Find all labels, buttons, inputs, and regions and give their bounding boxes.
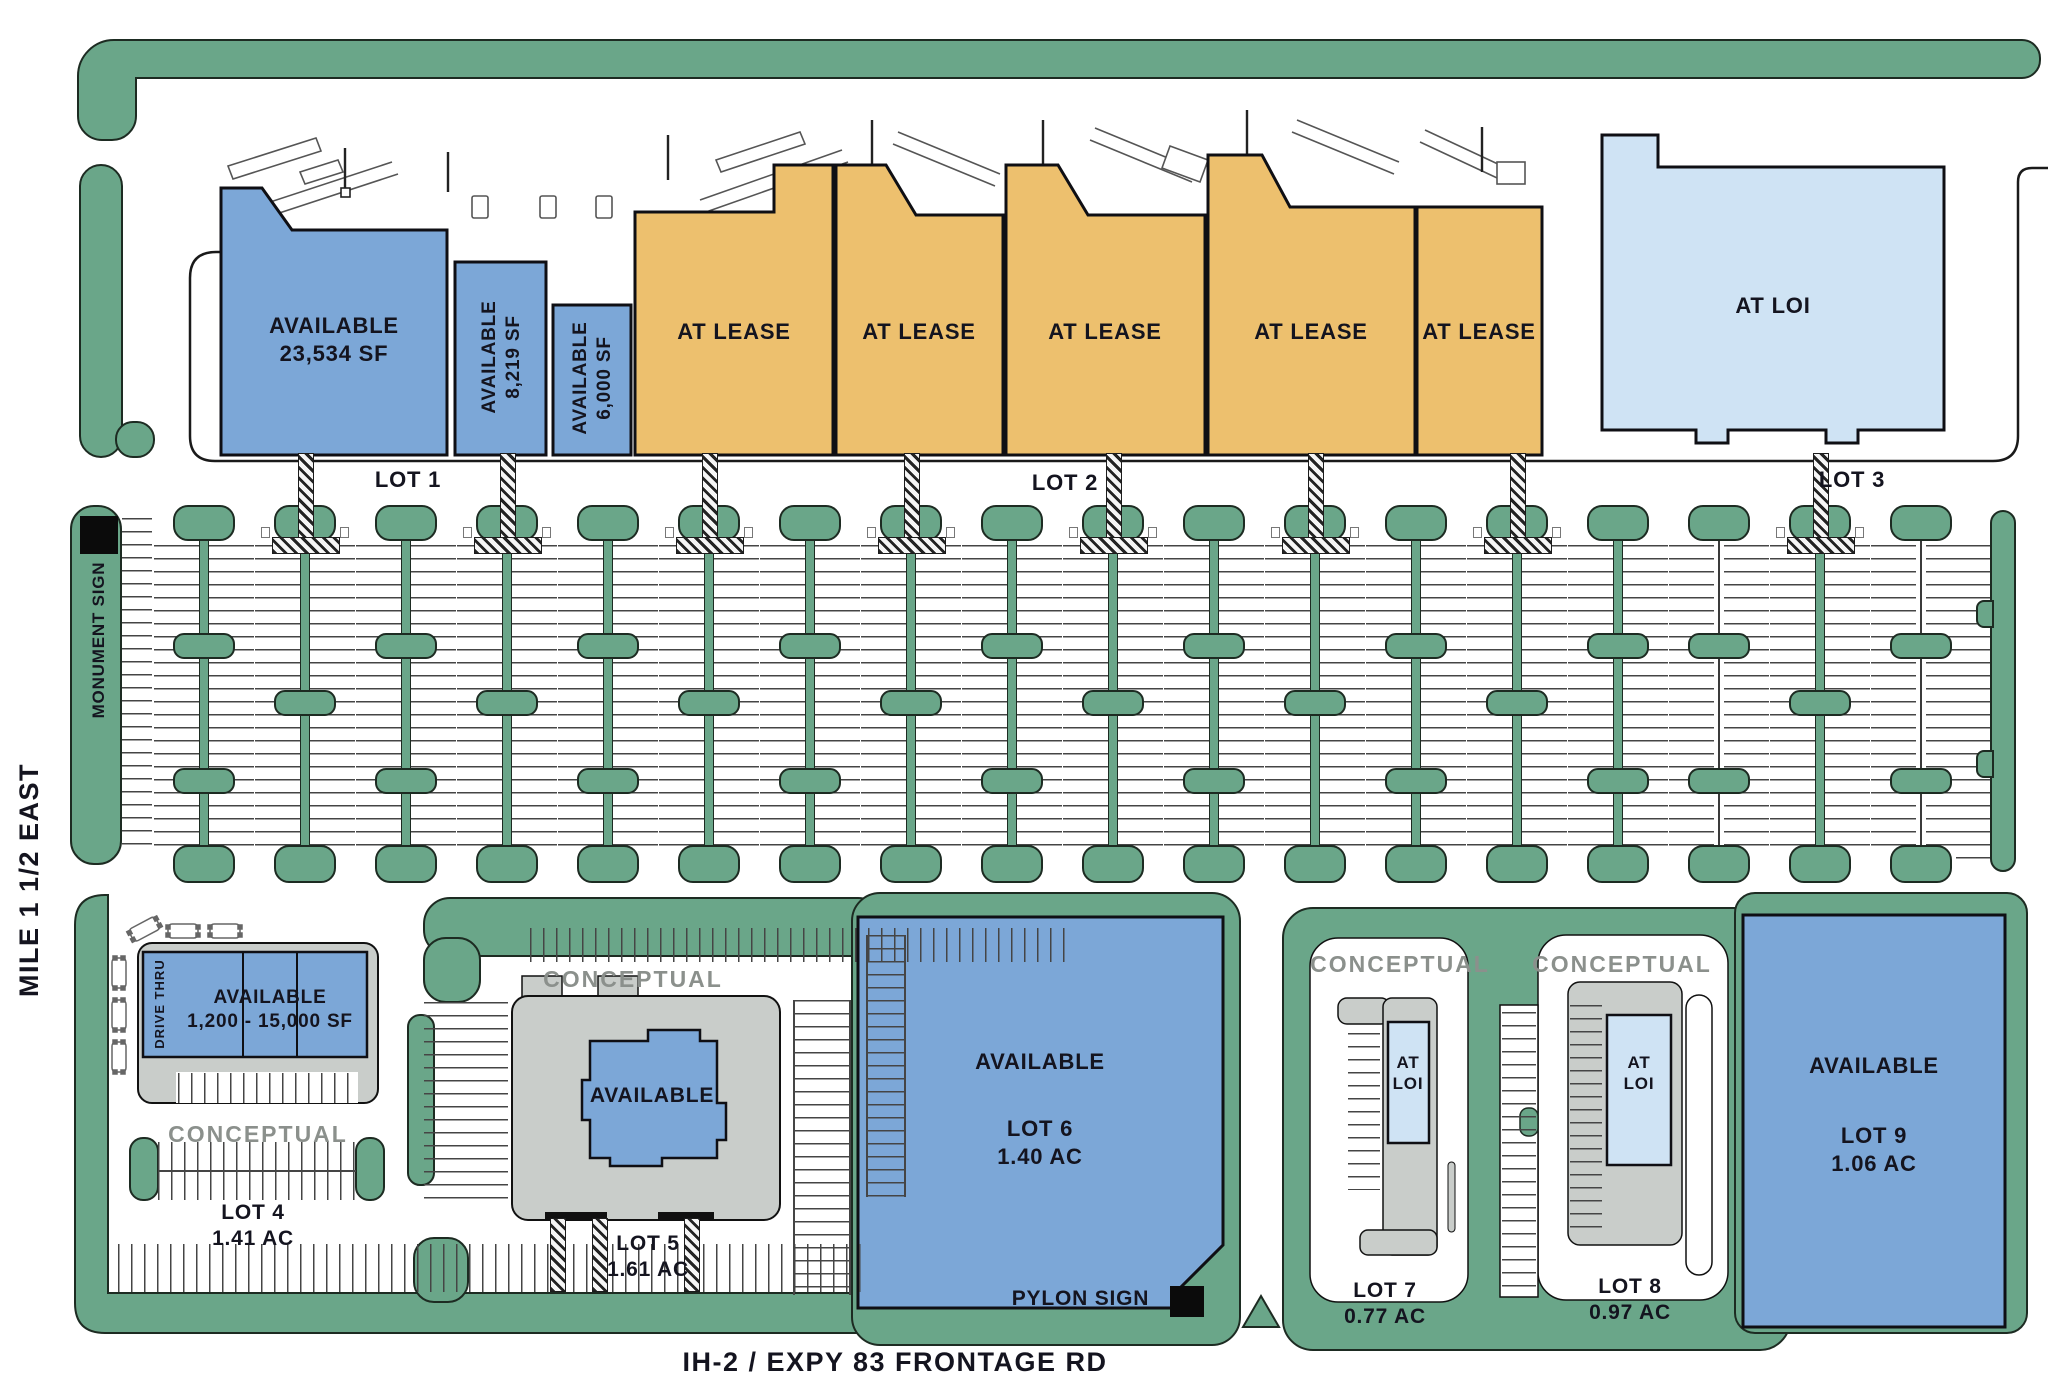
lot6-name-label: LOT 6 1.40 AC xyxy=(940,1115,1140,1170)
parking-row-11 xyxy=(1164,505,1264,883)
building-23534-label: AVAILABLE 23,534 SF xyxy=(224,312,444,367)
lot5-building-label: AVAILABLE xyxy=(552,1083,752,1109)
parking-row-17 xyxy=(1770,505,1870,883)
lot8-building-label: AT LOI xyxy=(1589,1052,1689,1095)
east-strip-tab-1 xyxy=(1976,600,1994,628)
lot6-name: LOT 6 xyxy=(940,1115,1140,1143)
parking-row-12 xyxy=(1265,505,1365,883)
at-lease-label-3: AT LEASE xyxy=(1025,318,1185,346)
parking-row-3 xyxy=(356,505,456,883)
lot9-status-label: AVAILABLE xyxy=(1774,1052,1974,1080)
monument-sign-label: MONUMENT SIGN xyxy=(88,490,108,790)
lot4-building-size: 1,200 - 15,000 SF xyxy=(150,1010,390,1034)
building-8219-size: 8,219 SF xyxy=(502,282,526,432)
west-street-label: MILE 1 1/2 EAST xyxy=(13,680,47,1080)
lot6-west-parking-ladder xyxy=(866,935,906,1197)
pylon-sign-marker xyxy=(1170,1286,1204,1317)
lot8-name-label: LOT 8 0.97 AC xyxy=(1530,1274,1730,1327)
lot4-median-stalls-bottom xyxy=(158,1172,356,1200)
parking-row-10 xyxy=(1063,505,1163,883)
lot4-name-label: LOT 4 1.41 AC xyxy=(153,1200,353,1253)
lot8-stalls xyxy=(1570,1005,1602,1230)
lot4-conceptual-label: CONCEPTUAL xyxy=(158,1120,358,1149)
south-street-label: IH-2 / EXPY 83 FRONTAGE RD xyxy=(645,1346,1145,1378)
parking-row-6 xyxy=(659,505,759,883)
at-loi-label: AT LOI xyxy=(1693,292,1853,320)
lot4-pad-stalls xyxy=(178,1073,358,1103)
parking-row-8 xyxy=(861,505,961,883)
lot8-acreage: 0.97 AC xyxy=(1530,1300,1730,1326)
building-6000-status: AVAILABLE xyxy=(569,303,593,453)
east-landscape-strip xyxy=(1990,510,2016,872)
lot8-building-line1: AT xyxy=(1589,1052,1689,1073)
lot6-acreage: 1.40 AC xyxy=(940,1143,1140,1171)
lot7-conceptual-label: CONCEPTUAL xyxy=(1300,950,1500,979)
lot5-acreage: 1.61 AC xyxy=(548,1257,748,1283)
at-lease-label-5: AT LEASE xyxy=(1399,318,1559,346)
site-plan: MONUMENT SIGN AVAILABLE 23,534 SF AVAILA… xyxy=(0,0,2048,1378)
building-6000-size: 6,000 SF xyxy=(593,303,617,453)
at-lease-label-2: AT LEASE xyxy=(839,318,999,346)
lot7-building-line2: LOI xyxy=(1358,1073,1458,1094)
parking-row-16 xyxy=(1669,505,1769,883)
lot2-label: LOT 2 xyxy=(1005,469,1125,497)
building-23534-size: 23,534 SF xyxy=(224,340,444,368)
lot7-name-label: LOT 7 0.77 AC xyxy=(1285,1278,1485,1331)
lot7-name: LOT 7 xyxy=(1285,1278,1485,1304)
parking-row-14 xyxy=(1467,505,1567,883)
lot7-building-line1: AT xyxy=(1358,1052,1458,1073)
lot7-building-label: AT LOI xyxy=(1358,1052,1458,1095)
parking-row-13 xyxy=(1366,505,1466,883)
parking-row-4 xyxy=(457,505,557,883)
lot5-north-stalls xyxy=(530,928,1075,962)
lot4-building-status: AVAILABLE xyxy=(150,986,390,1010)
lot1-label: LOT 1 xyxy=(348,466,468,494)
lot5-conceptual-label: CONCEPTUAL xyxy=(533,965,733,994)
east-strip-tab-2 xyxy=(1976,750,1994,778)
east-strip-stalls xyxy=(1956,545,1990,865)
building-8219-status: AVAILABLE xyxy=(478,282,502,432)
lot6-status-label: AVAILABLE xyxy=(940,1048,1140,1076)
lot8-building-line2: LOI xyxy=(1589,1073,1689,1094)
lot9-name-label: LOT 9 1.06 AC xyxy=(1774,1122,1974,1177)
parking-row-1 xyxy=(154,505,254,883)
pylon-sign-label: PYLON SIGN xyxy=(998,1286,1163,1312)
parking-row-9 xyxy=(962,505,1062,883)
parking-row-5 xyxy=(558,505,658,883)
monument-strip-stalls xyxy=(122,518,152,854)
lot5-name-label: LOT 5 1.61 AC xyxy=(548,1231,748,1284)
parking-row-2 xyxy=(255,505,355,883)
lot5-east-parking-ladder xyxy=(793,1000,851,1295)
lot4-name: LOT 4 xyxy=(153,1200,353,1226)
building-23534-status: AVAILABLE xyxy=(224,312,444,340)
lot4-building-label: AVAILABLE 1,200 - 15,000 SF xyxy=(150,986,390,1034)
lot8-conceptual-label: CONCEPTUAL xyxy=(1522,950,1722,979)
lot4-acreage: 1.41 AC xyxy=(153,1226,353,1252)
lot9-acreage: 1.06 AC xyxy=(1774,1150,1974,1178)
lot5-name: LOT 5 xyxy=(548,1231,748,1257)
parking-row-15 xyxy=(1568,505,1668,883)
at-lease-label-1: AT LEASE xyxy=(654,318,814,346)
lot7-lot8-ladder-stalls xyxy=(1502,1012,1536,1292)
lot5-west-stalls xyxy=(424,1002,508,1202)
building-6000-label: AVAILABLE 6,000 SF xyxy=(569,303,615,453)
building-8219-label: AVAILABLE 8,219 SF xyxy=(478,282,524,432)
lot3-label: LOT 3 xyxy=(1792,466,1912,494)
parking-row-7 xyxy=(760,505,860,883)
at-lease-label-4: AT LEASE xyxy=(1231,318,1391,346)
lot9-name: LOT 9 xyxy=(1774,1122,1974,1150)
lot7-acreage: 0.77 AC xyxy=(1285,1304,1485,1330)
lot8-name: LOT 8 xyxy=(1530,1274,1730,1300)
